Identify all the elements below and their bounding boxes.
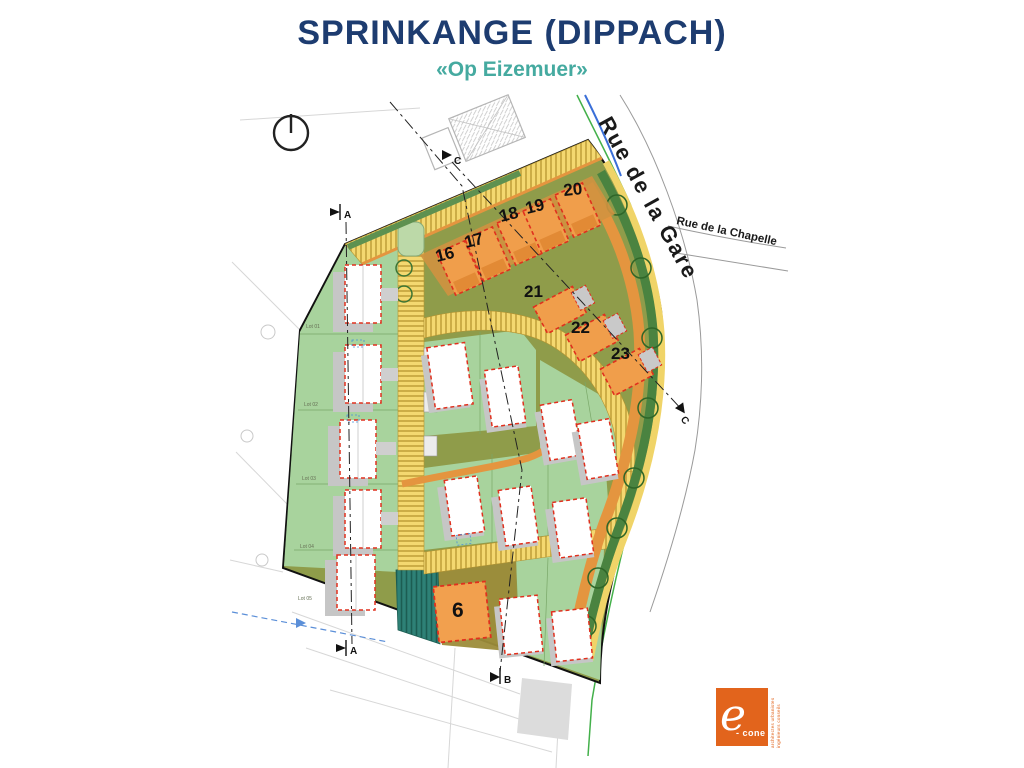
svg-text:21: 21 (524, 282, 543, 301)
svg-text:Lot 01: Lot 01 (306, 324, 320, 330)
infiltration-swale (398, 222, 424, 256)
svg-text:A: A (350, 646, 357, 657)
svg-text:B: B (504, 675, 511, 686)
e-cone-logo: e - cone architectes urbanistes ingénieu… (716, 688, 786, 750)
svg-text:C: C (454, 156, 461, 167)
retention-basin (396, 565, 440, 644)
north-compass-icon (274, 114, 308, 150)
existing-building-bottom (517, 678, 572, 740)
street-label-rue-de-la-chapelle: Rue de la Chapelle (675, 215, 778, 248)
svg-text:C: C (678, 414, 691, 426)
section-marker-c-right: C (671, 402, 694, 426)
blue-section-line (232, 612, 388, 642)
existing-building-top (419, 95, 525, 174)
svg-text:A: A (344, 210, 351, 221)
svg-text:Lot 04: Lot 04 (300, 544, 314, 550)
e-cone-logo-tagline: architectes urbanistes ingénieurs consei… (770, 690, 781, 748)
site-plan-page: { "title": "SPRINKANGE (DIPPACH)", "subt… (0, 0, 1024, 768)
svg-text:Lot 02: Lot 02 (304, 402, 318, 408)
section-marker-a-top: A (330, 204, 351, 221)
svg-text:20: 20 (562, 179, 583, 200)
e-cone-logo-square: e - cone (716, 688, 768, 746)
site-plan-map: A A B C C Rue de la Gare Rue de la Chape… (0, 0, 1024, 768)
existing-trees (241, 325, 275, 566)
e-cone-logo-name: - cone (736, 728, 766, 738)
svg-text:Lot 05: Lot 05 (298, 596, 312, 602)
section-marker-b-bottom: B (490, 668, 511, 686)
svg-text:Lot 03: Lot 03 (302, 476, 316, 482)
svg-text:22: 22 (571, 318, 590, 337)
svg-text:23: 23 (611, 344, 630, 363)
section-marker-a-bottom: A (336, 640, 357, 657)
svg-text:6: 6 (452, 599, 464, 622)
